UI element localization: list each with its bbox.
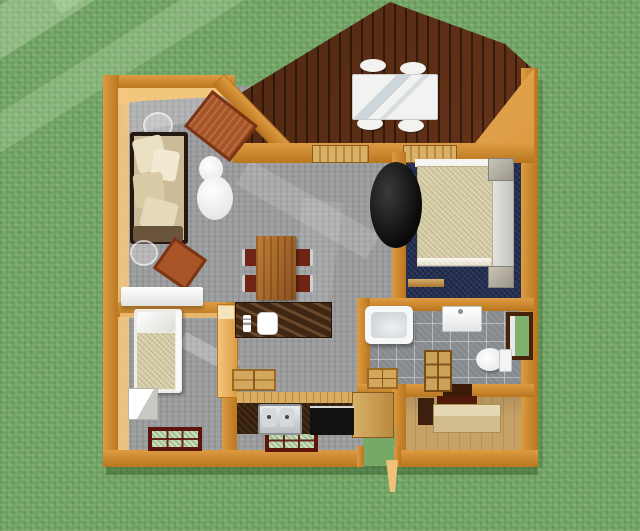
toilet-tank: [499, 349, 512, 372]
dining-table: [256, 236, 296, 300]
deck-chair: [360, 59, 386, 72]
kitchen-cabinet: [352, 392, 394, 438]
utility-dresser: [433, 404, 501, 433]
glass-side-table: [130, 240, 158, 266]
kitchen-floor-grate: [232, 369, 276, 391]
floorplan-image: [0, 0, 640, 531]
single-bed-rail: [176, 311, 181, 391]
island-appliance: [243, 315, 251, 332]
deck-door-threshold: [312, 145, 369, 163]
single-bed-blanket: [137, 333, 175, 389]
pantry-shelf: [218, 306, 234, 319]
bed-blanket: [417, 166, 493, 266]
utility-dark-cabinet: [418, 398, 434, 425]
bed-nightstand: [488, 158, 514, 181]
bath-mat: [367, 368, 398, 389]
door-post: [357, 446, 364, 467]
wall-bottom-right-segment: [400, 450, 538, 467]
small-bedroom-dresser: [128, 388, 158, 420]
bed-nightstand: [488, 266, 514, 288]
cooktop: [310, 406, 354, 435]
dining-chair: [295, 275, 313, 292]
dining-chair: [295, 249, 313, 266]
small-bedroom-window: [148, 427, 202, 451]
deck-chair: [398, 119, 424, 132]
deck-table: [352, 74, 438, 120]
sink-drain: [285, 415, 289, 419]
bedroom-bench: [408, 279, 444, 287]
single-bed-pillow: [137, 312, 175, 332]
wall-bottom-left-segment: [103, 450, 360, 467]
wall-left: [103, 75, 119, 467]
island-sink: [257, 312, 278, 335]
bathtub-basin: [371, 312, 407, 338]
floor-lamp-shade: [197, 176, 233, 220]
bathroom-shelf: [424, 350, 452, 392]
house-shadow-bottom: [106, 466, 538, 475]
faucet: [458, 309, 463, 314]
console-table: [121, 287, 203, 306]
wood-stove: [370, 162, 422, 248]
sink-drain: [267, 415, 271, 419]
bed-sheet-fold: [417, 258, 491, 267]
